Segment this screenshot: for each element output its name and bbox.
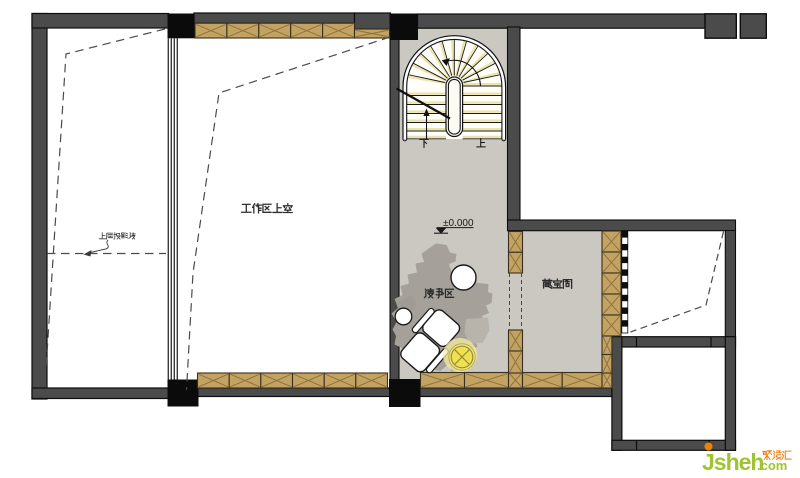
- svg-text:.com: .com: [757, 458, 787, 473]
- svg-text:Jsheh: Jsheh: [702, 449, 763, 473]
